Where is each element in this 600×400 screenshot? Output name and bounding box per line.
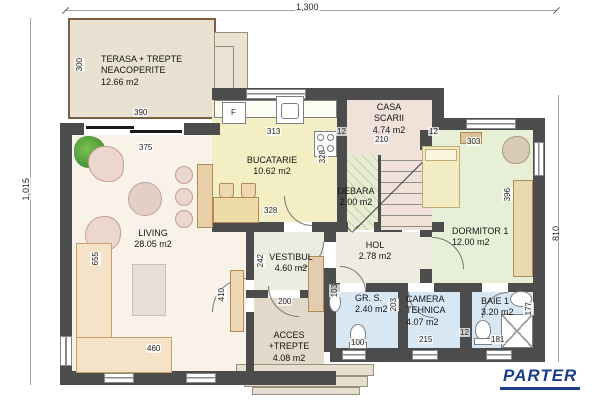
staircase-label: CASA SCARII 4.74 m2 (360, 102, 418, 136)
dim-tech-w: 215 (418, 335, 433, 344)
dim-living-right: 410 (216, 288, 227, 301)
wall-hall-wet (366, 283, 408, 292)
floor-plan-canvas: 1,300 1,015 810 TERASA + TREPTE NEACOPER… (0, 0, 600, 400)
kitchen-sink-basin (281, 103, 299, 119)
dim-right-label: 810 (550, 226, 562, 241)
wall-vestibule-grs (324, 232, 336, 242)
dim-bedroom-h: 396 (502, 188, 513, 201)
coffee-table (128, 182, 162, 216)
bathroom-label: BAIE 1 3.20 m2 (481, 296, 514, 319)
window (486, 350, 512, 360)
hall-label: HOL 2.78 m2 (345, 240, 405, 263)
window (342, 350, 366, 360)
window (60, 336, 72, 366)
wall-hall-wet (434, 283, 482, 292)
dim-wall-12: 12 (336, 127, 347, 136)
terrace-dim-w: 390 (133, 108, 148, 117)
sliding-door (84, 123, 184, 135)
dim-kitchen-w: 313 (266, 127, 281, 136)
dim-bedroom-w: 303 (466, 137, 481, 146)
dim-wall-12: 12 (459, 328, 470, 337)
vestibule-label: VESTIBUL 4.60 m2 (258, 252, 324, 275)
wall-vestibule-access (246, 290, 268, 298)
wall-bedroom-left (420, 269, 432, 283)
dining-chair (175, 188, 193, 206)
sliding-door-leaf (86, 126, 134, 129)
window (104, 373, 134, 383)
wall-mid (432, 222, 444, 232)
tech-room-label: CAMERA TEHNICA 4.07 m2 (406, 294, 446, 328)
wall-tech-bath (460, 292, 472, 350)
window (466, 119, 516, 129)
dim-living-sofa: 460 (146, 344, 161, 353)
bedroom-label: DORMITOR 1 12.00 m2 (452, 226, 508, 249)
dim-grs-h: 103 (329, 284, 340, 297)
window (186, 373, 216, 383)
wardrobe (513, 180, 533, 277)
tv-cabinet (230, 270, 244, 332)
kitchen-chair (219, 183, 234, 198)
dim-top-label: 1,300 (295, 2, 320, 12)
sofa (76, 337, 172, 373)
dining-bench (197, 164, 213, 228)
wall-mid (312, 222, 348, 232)
kitchen-table (213, 197, 259, 223)
wall-living-vestibule (246, 232, 254, 280)
wall-hall-wet (508, 283, 545, 292)
terrace-label: TERASA + TREPTE NEACOPERITE 12.66 m2 (101, 54, 182, 88)
window (534, 142, 544, 176)
dim-wall-12: 12 (428, 127, 439, 136)
wall-top-staircase (340, 88, 444, 100)
dim-bathroom-w: 181 (490, 335, 505, 344)
dim-line-left (30, 18, 31, 385)
wall-mid (212, 222, 284, 232)
dining-chair (175, 210, 193, 228)
dim-living-w: 375 (138, 143, 153, 152)
bath-toilet (475, 320, 491, 340)
kitchen-chair (241, 183, 256, 198)
grs-label: GR. S. 2.40 m2 (355, 293, 388, 316)
access-label: ACCES +TREPTE 4.08 m2 (258, 330, 320, 364)
dim-kitchen-w2: 328 (263, 206, 278, 215)
kitchen-label: BUCATARIE 10.62 m2 (228, 155, 316, 178)
dim-grs-w: 100 (350, 338, 365, 347)
dim-staircase-w: 210 (374, 135, 389, 144)
dim-vestibule-h: 242 (255, 254, 266, 267)
dim-living-h: 655 (90, 252, 101, 265)
rug (132, 264, 166, 316)
dim-vestibule-w: 200 (277, 297, 292, 306)
wall-kitchen-staircase (337, 100, 347, 230)
stove-burner (327, 134, 334, 141)
dim-kitchen-h: 328 (317, 150, 328, 163)
dim-tick (553, 7, 560, 14)
window (412, 350, 438, 360)
living-label: LIVING 28.05 m2 (108, 228, 198, 251)
dim-left-label: 1,015 (20, 178, 32, 201)
dim-tech-h: 203 (388, 298, 399, 311)
dim-bathroom-h: 177 (523, 302, 534, 315)
stove-burner (327, 145, 334, 152)
armchair (88, 146, 124, 182)
entrance-step (252, 387, 360, 395)
shower (501, 314, 533, 348)
wall-access-left (246, 360, 254, 373)
debara-label: DEBARA 2.00 m2 (330, 186, 382, 209)
bed-pillow (425, 149, 457, 161)
terrace-dim-h: 300 (74, 58, 85, 71)
plan-title: PARTER (500, 366, 580, 390)
sliding-door-leaf (130, 130, 182, 133)
stove-burner (317, 134, 324, 141)
fridge-label: F (230, 108, 237, 117)
plant-icon (502, 136, 530, 164)
dining-chair (175, 166, 193, 184)
